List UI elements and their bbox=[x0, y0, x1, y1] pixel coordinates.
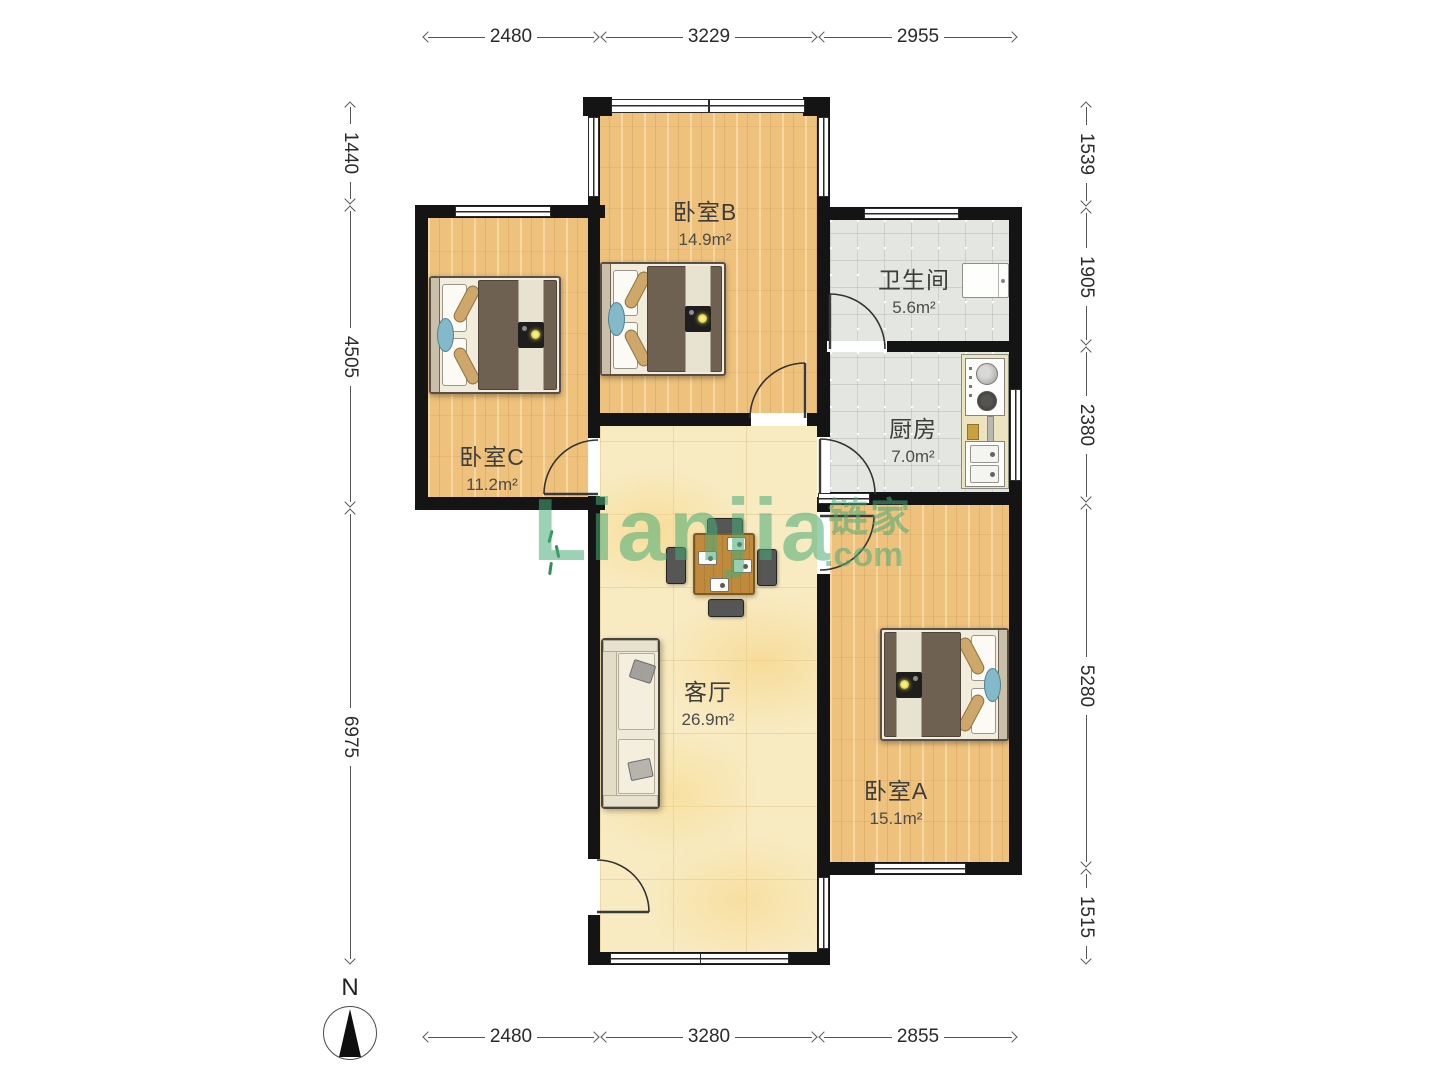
washing-machine-icon bbox=[962, 263, 1009, 298]
room-label-living-room: 客厅 26.9m² bbox=[682, 673, 735, 730]
dimension-top-3: 2955 bbox=[820, 29, 1016, 45]
door-opening-bedroom-b bbox=[751, 413, 807, 426]
dimension-value: 2380 bbox=[1075, 403, 1097, 445]
room-label-bedroom-c: 卧室C 11.2m² bbox=[459, 438, 525, 495]
dimension-right-4: 5280 bbox=[1078, 505, 1094, 866]
dimension-value: 1539 bbox=[1075, 133, 1097, 175]
plate bbox=[710, 578, 729, 592]
bed-duvet bbox=[884, 632, 961, 737]
window-kitchen bbox=[1010, 389, 1021, 481]
stove-burner bbox=[977, 391, 997, 411]
wall bbox=[1009, 207, 1022, 875]
room-area: 5.6m² bbox=[878, 298, 950, 318]
floor-plan: 卧室B 14.9m² 卫生间 5.6m² 厨房 7.0m² 卧室C 11.2m²… bbox=[0, 0, 1440, 1080]
plant-decor bbox=[548, 562, 553, 575]
dimension-value: 2480 bbox=[485, 26, 537, 48]
window-bedroom-a bbox=[874, 863, 966, 874]
room-label-kitchen: 厨房 7.0m² bbox=[889, 410, 937, 467]
washing-machine-line bbox=[998, 264, 999, 297]
wall bbox=[415, 497, 605, 510]
dimension-bottom-3: 2855 bbox=[820, 1029, 1016, 1045]
dimension-value: 1905 bbox=[1075, 255, 1097, 297]
room-area: 26.9m² bbox=[682, 710, 735, 730]
window-kitchen-passthrough bbox=[818, 493, 870, 504]
dimension-value: 2955 bbox=[892, 26, 944, 48]
north-arrow-icon bbox=[339, 1009, 361, 1057]
compass-north-label: N bbox=[322, 974, 378, 1002]
room-label-bedroom-a: 卧室A 15.1m² bbox=[864, 772, 928, 829]
stove-icon bbox=[965, 358, 1005, 416]
window-bay-top bbox=[611, 99, 805, 113]
room-area: 11.2m² bbox=[459, 475, 525, 495]
kitchen-utensil bbox=[967, 424, 979, 440]
wall bbox=[588, 205, 600, 965]
dimension-left-3: 6975 bbox=[342, 510, 358, 963]
dimension-value: 4505 bbox=[339, 335, 361, 377]
bed-round-pillow bbox=[608, 302, 625, 336]
dimension-right-2: 1905 bbox=[1078, 209, 1094, 344]
window-living-right bbox=[818, 877, 829, 949]
wall bbox=[415, 205, 428, 510]
plate bbox=[727, 537, 746, 551]
dimension-right-5: 1515 bbox=[1078, 870, 1094, 963]
plate bbox=[733, 559, 752, 573]
room-name: 卧室A bbox=[864, 772, 928, 806]
room-label-bedroom-b: 卧室B 14.9m² bbox=[673, 193, 737, 250]
dimension-bottom-1: 2480 bbox=[424, 1029, 598, 1045]
room-name: 厨房 bbox=[889, 410, 937, 444]
dimension-value: 2480 bbox=[485, 1026, 537, 1048]
sink-basin bbox=[970, 445, 999, 463]
dimension-value: 1515 bbox=[1075, 895, 1097, 937]
door-opening-bedroom-a bbox=[817, 512, 830, 574]
window-bedroom-c bbox=[455, 206, 551, 217]
bedside-lamp-icon bbox=[518, 322, 544, 348]
dining-chair bbox=[666, 547, 686, 584]
dimension-value: 6975 bbox=[339, 715, 361, 757]
dimension-top-2: 3229 bbox=[602, 29, 816, 45]
room-label-bathroom: 卫生间 5.6m² bbox=[878, 261, 950, 318]
bed-duvet bbox=[647, 266, 722, 372]
dimension-value: 5280 bbox=[1075, 664, 1097, 706]
bed-round-pillow bbox=[984, 668, 1001, 702]
stove-knobs bbox=[969, 367, 972, 401]
bed-round-pillow bbox=[437, 318, 454, 352]
sink-basin bbox=[970, 465, 999, 483]
dimension-right-1: 1539 bbox=[1078, 103, 1094, 205]
dimension-value: 1440 bbox=[339, 132, 361, 174]
dimension-value: 3229 bbox=[683, 26, 735, 48]
bed-bedroom-c bbox=[429, 276, 561, 394]
dining-chair bbox=[708, 599, 744, 617]
kitchen-utensil bbox=[987, 416, 994, 442]
dimension-top-1: 2480 bbox=[424, 29, 598, 45]
room-name: 卧室B bbox=[673, 193, 737, 227]
dining-chair bbox=[757, 549, 777, 586]
washing-machine-dot bbox=[1001, 279, 1005, 283]
window-bay-right bbox=[818, 117, 829, 197]
window-bay-left bbox=[588, 117, 599, 197]
room-area: 14.9m² bbox=[673, 230, 737, 250]
door-opening-bathroom bbox=[827, 341, 887, 352]
wall-post bbox=[583, 97, 612, 116]
wall bbox=[817, 207, 830, 965]
door-opening-bedroom-c bbox=[588, 438, 600, 496]
plant-decor bbox=[547, 530, 553, 543]
dimension-left-2: 4505 bbox=[342, 207, 358, 506]
sofa bbox=[601, 638, 660, 809]
sofa-armrest bbox=[603, 640, 658, 652]
dimension-left-1: 1440 bbox=[342, 103, 358, 203]
stove-burner bbox=[976, 363, 998, 385]
room-area: 15.1m² bbox=[864, 809, 928, 829]
plate bbox=[698, 551, 717, 565]
sofa-back bbox=[603, 640, 617, 807]
door-opening-kitchen bbox=[817, 437, 830, 497]
door-opening-entry bbox=[588, 859, 600, 915]
bed-bedroom-a bbox=[880, 628, 1009, 741]
bed-bedroom-b bbox=[600, 262, 726, 376]
bedside-lamp-icon bbox=[896, 672, 922, 698]
plant-decor bbox=[555, 545, 561, 558]
room-area: 7.0m² bbox=[889, 447, 937, 467]
kitchen-sink-icon bbox=[965, 441, 1005, 487]
bedside-lamp-icon bbox=[685, 306, 711, 332]
dimension-right-3: 2380 bbox=[1078, 348, 1094, 501]
dimension-value: 3280 bbox=[683, 1026, 735, 1048]
room-name: 客厅 bbox=[682, 673, 735, 707]
window-bathroom bbox=[864, 208, 959, 219]
dimension-value: 2855 bbox=[892, 1026, 944, 1048]
dimension-bottom-2: 3280 bbox=[602, 1029, 816, 1045]
wall-post bbox=[803, 97, 830, 116]
sofa-armrest bbox=[603, 795, 658, 807]
room-name: 卧室C bbox=[459, 438, 525, 472]
window-living-bottom bbox=[610, 953, 789, 964]
room-name: 卫生间 bbox=[878, 261, 950, 295]
bed-duvet bbox=[478, 280, 557, 390]
